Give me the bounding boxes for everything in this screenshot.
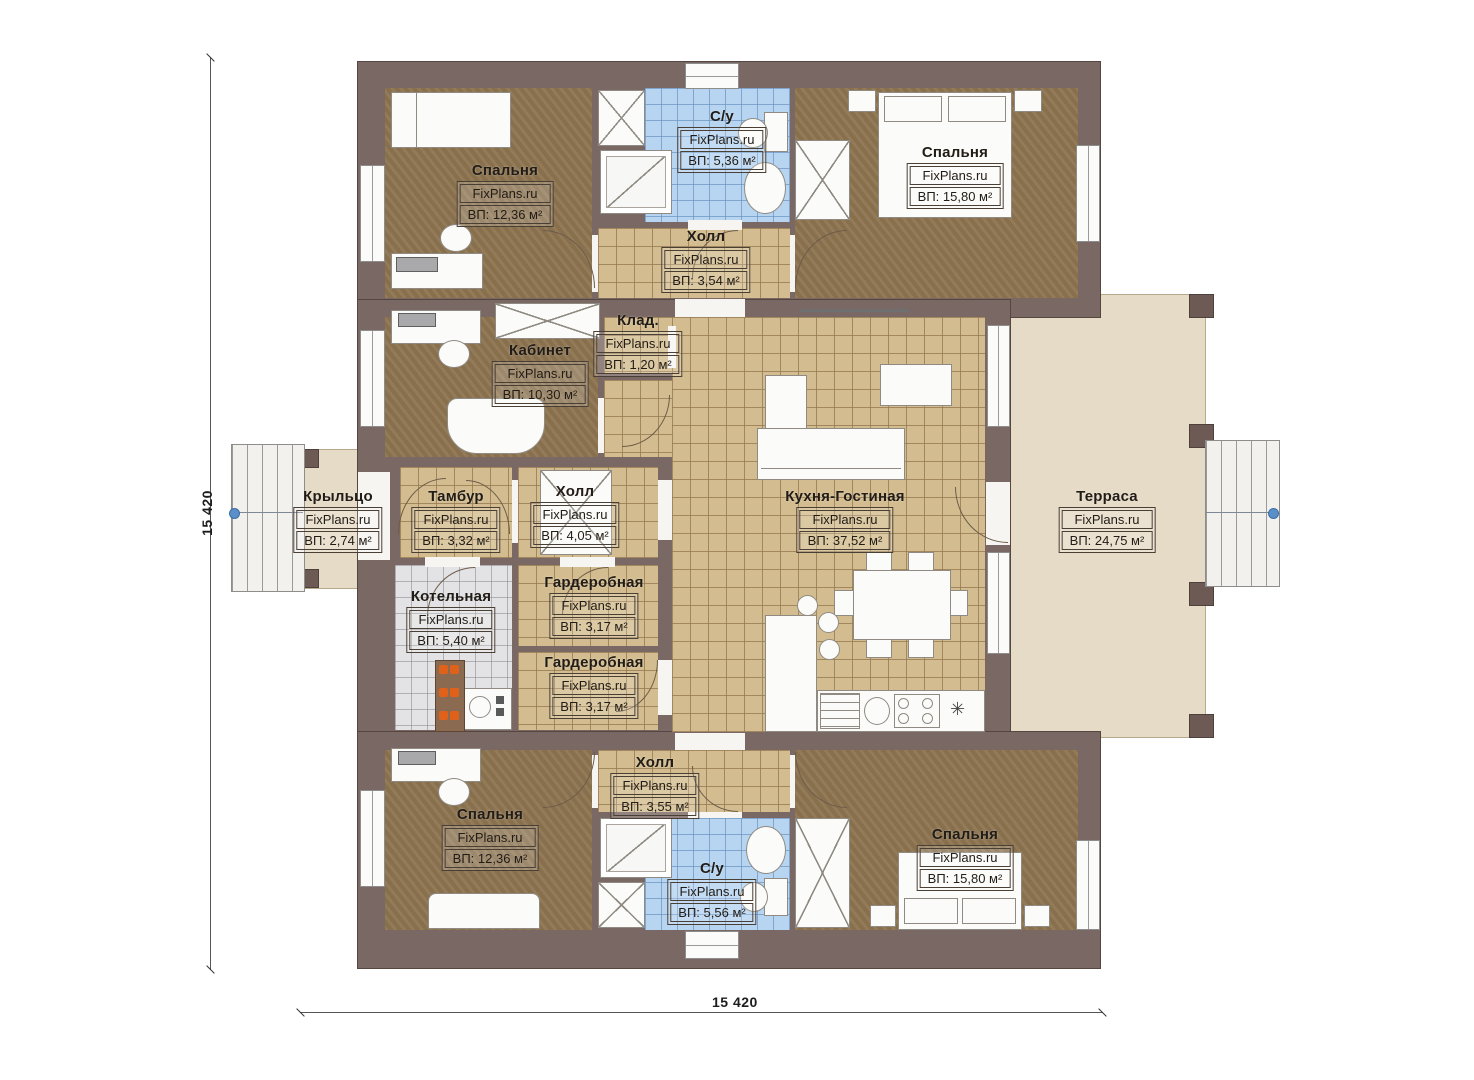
watermark-text: FixPlans.ru [409,610,492,629]
kitchen-sink [864,697,890,725]
nightstand [848,90,876,112]
room-area: ВП: 3,17 м² [552,697,635,716]
nightstand [1024,905,1050,927]
dimension-label-bottom: 15 420 [712,994,758,1010]
room-label-kitchen-living: Кухня-Гостиная FixPlans.ruВП: 37,52 м² [785,488,904,553]
tv-console [800,309,910,312]
boiler-indicator [450,711,459,720]
window [360,165,385,262]
room-area: ВП: 24,75 м² [1062,531,1153,550]
boiler-indicator [450,688,459,697]
boiler-knob [496,708,504,716]
bar-stool [819,639,840,660]
room-name: Спальня [457,162,554,179]
room-name: Холл [530,483,619,500]
room-name: Холл [610,754,699,771]
room-name: Гардеробная [544,654,643,671]
bed-pillow [904,898,958,924]
watermark-text: FixPlans.ru [414,510,497,529]
room-area: ВП: 5,56 м² [670,903,753,922]
wardrobe-cabinet [598,90,645,146]
room-label-storage: Клад. FixPlans.ruВП: 1,20 м² [593,312,682,377]
watermark-text: FixPlans.ru [460,184,551,203]
room-label-bedroom-top-left: Спальня FixPlans.ruВП: 12,36 м² [457,162,554,227]
passage-opening [675,733,745,750]
room-area: ВП: 15,80 м² [910,187,1001,206]
bed-pillow [962,898,1016,924]
desk-equipment [398,313,436,327]
watermark-text: FixPlans.ru [596,334,679,353]
stove-burner [922,698,933,709]
window-to-terrace [987,325,1010,427]
room-area: ВП: 12,36 м² [460,205,551,224]
room-label-office: Кабинет FixPlans.ruВП: 10,30 м² [492,342,589,407]
room-name: Клад. [593,312,682,329]
vent-shaft-bottom [685,931,739,959]
room-name: Терраса [1059,488,1156,505]
room-label-hall-middle: Холл FixPlans.ruВП: 4,05 м² [530,483,619,548]
room-label-bedroom-top-right: Спальня FixPlans.ruВП: 15,80 м² [907,144,1004,209]
wardrobe-cabinet [795,818,850,928]
boiler-appliance-drum [469,696,491,718]
room-name: Холл [661,228,750,245]
room-label-wardrobe-upper: Гардеробная FixPlans.ruВП: 3,17 м² [544,574,643,639]
boiler-indicator [439,665,448,674]
axis-line [231,512,303,513]
watermark-text: FixPlans.ru [680,130,763,149]
boiler-indicator [439,688,448,697]
room-label-bedroom-bottom-left: Спальня FixPlans.ruВП: 12,36 м² [442,806,539,871]
desk-equipment [396,257,438,272]
room-label-vestibule: Тамбур FixPlans.ruВП: 3,32 м² [411,488,500,553]
stove-burner [922,713,933,724]
door-opening [658,480,672,540]
watermark-text: FixPlans.ru [552,676,635,695]
dining-chair [866,638,892,658]
room-name: Кабинет [492,342,589,359]
desk-chair [438,340,470,368]
door-opening [658,660,672,715]
room-area: ВП: 5,40 м² [409,631,492,650]
stove-burner [898,713,909,724]
room-name: Спальня [917,826,1014,843]
sofa-seat-line [761,468,901,469]
room-label-bedroom-bottom-right: Спальня FixPlans.ruВП: 15,80 м² [917,826,1014,891]
desk-chair [438,778,470,806]
room-area: ВП: 4,05 м² [533,526,616,545]
watermark-text: FixPlans.ru [533,505,616,524]
room-name: Котельная [406,588,495,605]
sofa [428,893,540,929]
stove-burner [898,698,909,709]
bed-pillow [884,96,942,122]
window-to-terrace [987,552,1010,654]
room-area: ВП: 10,30 м² [495,385,586,404]
vent-symbol: ✳ [950,699,965,720]
sofa [757,428,905,480]
nightstand [1014,90,1042,112]
room-label-bathroom-bottom: С/у FixPlans.ruВП: 5,56 м² [667,860,756,925]
room-name: Спальня [907,144,1004,161]
bar-stool [818,612,839,633]
wardrobe-cabinet [495,303,600,339]
shower-stall [600,150,672,214]
nightstand [870,905,896,927]
window [360,330,385,427]
room-area: ВП: 3,55 м² [613,797,696,816]
floor-plan-canvas: 15 420 15 420 [0,0,1474,1080]
room-area: ВП: 3,32 м² [414,531,497,550]
room-label-wardrobe-lower: Гардеробная FixPlans.ruВП: 3,17 м² [544,654,643,719]
room-label-bathroom-top: С/у FixPlans.ruВП: 5,36 м² [677,108,766,173]
window [1076,145,1100,242]
dining-chair [866,552,892,572]
desk-equipment [398,751,436,765]
watermark-text: FixPlans.ru [1062,510,1153,529]
dining-chair [908,638,934,658]
window [360,790,385,887]
watermark-text: FixPlans.ru [664,250,747,269]
watermark-text: FixPlans.ru [613,776,696,795]
dimension-label-left: 15 420 [199,490,215,536]
watermark-text: FixPlans.ru [552,596,635,615]
dining-chair [948,590,968,616]
watermark-text: FixPlans.ru [296,510,379,529]
passage-opening [675,299,745,317]
room-label-terrace: Терраса FixPlans.ruВП: 24,75 м² [1059,488,1156,553]
watermark-text: FixPlans.ru [670,882,753,901]
bed-pillow [948,96,1006,122]
axis-marker [229,508,240,519]
room-label-hall-bottom: Холл FixPlans.ruВП: 3,55 м² [610,754,699,819]
room-name: Крыльцо [293,488,382,505]
wardrobe-cabinet [598,882,645,928]
room-area: ВП: 5,36 м² [680,151,763,170]
room-name: Спальня [442,806,539,823]
watermark-text: FixPlans.ru [910,166,1001,185]
desk-chair [440,224,472,252]
room-name: Гардеробная [544,574,643,591]
dining-table [853,570,951,640]
door-opening [598,398,604,453]
watermark-text: FixPlans.ru [495,364,586,383]
room-area: ВП: 37,52 м² [800,531,891,550]
door-opening [790,755,795,808]
terrace-post [1190,715,1213,737]
room-label-porch: Крыльцо FixPlans.ruВП: 2,74 м² [293,488,382,553]
sofa-chaise [765,375,807,433]
room-area: ВП: 12,36 м² [445,849,536,868]
dining-chair [908,552,934,572]
room-area: ВП: 1,20 м² [596,355,679,374]
room-area: ВП: 2,74 м² [296,531,379,550]
room-area: ВП: 3,54 м² [664,271,747,290]
wardrobe-cabinet [795,140,850,220]
terrace-post [1190,295,1213,317]
coffee-table [880,364,952,406]
watermark-text: FixPlans.ru [920,848,1011,867]
kitchen-bar-counter [765,615,817,732]
dimension-line-bottom [300,1012,1103,1013]
dining-chair [834,590,854,616]
door-opening [512,480,518,543]
boiler-indicator [450,665,459,674]
shower-stall [600,818,672,878]
watermark-text: FixPlans.ru [800,510,891,529]
room-name: С/у [667,860,756,877]
room-name: Кухня-Гостиная [785,488,904,505]
room-name: Тамбур [411,488,500,505]
bed-pillow [391,92,417,148]
room-label-boiler-room: Котельная FixPlans.ruВП: 5,40 м² [406,588,495,653]
fridge [820,693,860,729]
room-area: ВП: 15,80 м² [920,869,1011,888]
door-opening [560,557,615,567]
room-name: С/у [677,108,766,125]
boiler-indicator [439,711,448,720]
bar-stool [797,595,818,616]
boiler-knob [496,696,504,704]
room-area: ВП: 3,17 м² [552,617,635,636]
vent-shaft-top [685,63,739,89]
window [1076,840,1100,930]
room-label-hall-top: Холл FixPlans.ruВП: 3,54 м² [661,228,750,293]
watermark-text: FixPlans.ru [445,828,536,847]
axis-marker [1268,508,1279,519]
door-opening [425,557,480,567]
